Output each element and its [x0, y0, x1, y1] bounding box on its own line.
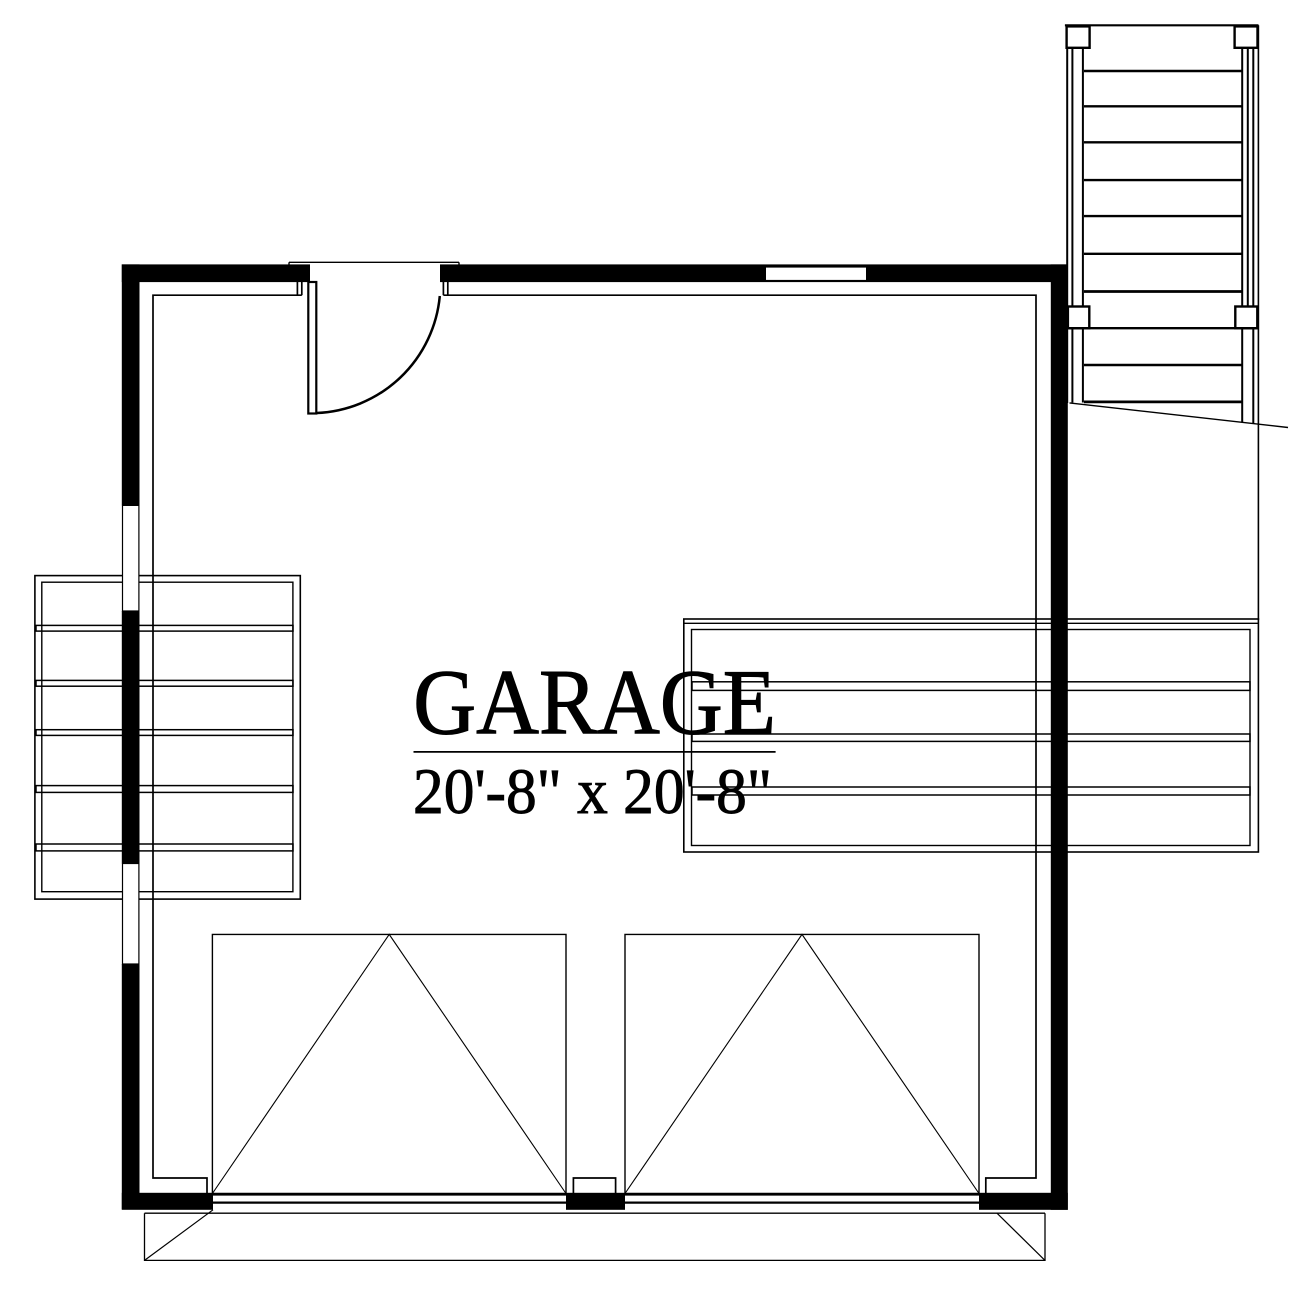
svg-text:20'-8" x 20'-8": 20'-8" x 20'-8": [413, 756, 772, 828]
svg-text:GARAGE: GARAGE: [413, 651, 776, 755]
